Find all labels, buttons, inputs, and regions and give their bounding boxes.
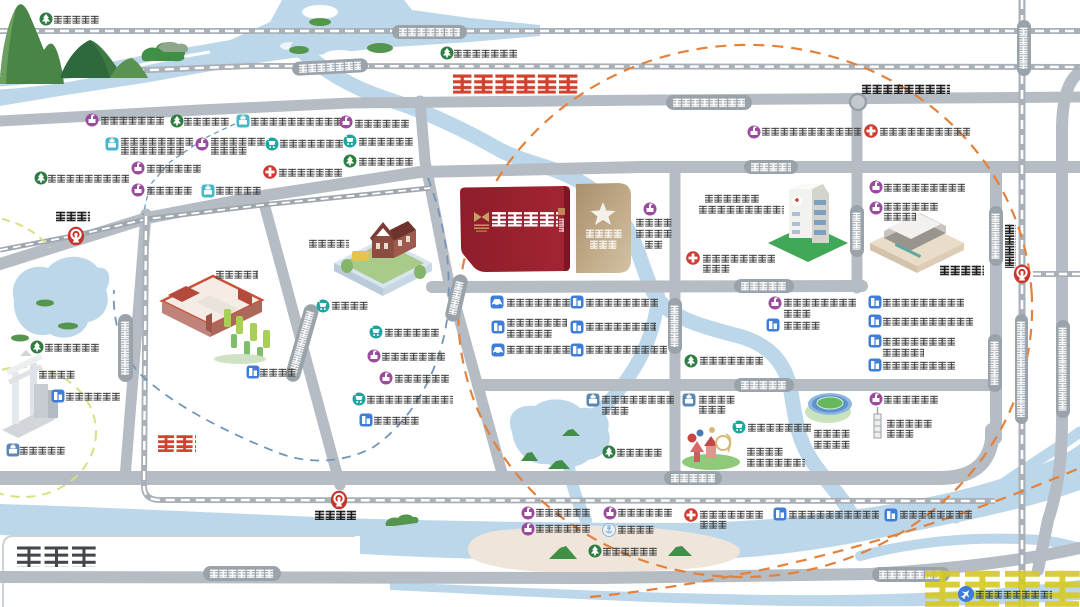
svg-text:(在建): (在建)	[602, 405, 626, 416]
svg-text:观砚大道: 观砚大道	[296, 351, 332, 362]
svg-text:科学产业园: 科学产业园	[507, 328, 552, 339]
svg-text:主题乐园(在建): 主题乐园(在建)	[747, 457, 807, 468]
svg-text:砚阳湖公园: 砚阳湖公园	[617, 448, 662, 458]
svg-text:(优世联合): (优世联合)	[883, 347, 925, 358]
svg-text:肇庆智慧城市中心: 肇庆智慧城市中心	[883, 336, 955, 347]
svg-text:爱满地汽车广场: 爱满地汽车广场	[507, 344, 570, 355]
svg-text:三茂铁路: 三茂铁路	[392, 27, 428, 38]
svg-text:荣发购物广场: 荣发购物广场	[359, 136, 413, 147]
svg-text:广昆高速: 广昆高速	[881, 570, 917, 581]
svg-text:星湖国际广场: 星湖国际广场	[66, 391, 120, 402]
svg-text:肇庆香港城(在建): 肇庆香港城(在建)	[900, 509, 969, 520]
svg-text:华梦汽车产业园: 华梦汽车产业园	[507, 297, 570, 308]
svg-text:体育中心: 体育中心	[814, 439, 850, 450]
svg-text:七星岩风景区: 七星岩风景区	[45, 342, 99, 353]
svg-text:肇庆医学: 肇庆医学	[636, 217, 672, 228]
svg-text:鼎湖市场: 鼎湖市场	[332, 300, 368, 311]
svg-text:平谦国际(肇庆): 平谦国际(肇庆)	[507, 318, 567, 329]
svg-text:两馆一宫: 两馆一宫	[699, 394, 735, 405]
svg-text:好家源购物商场: 好家源购物商场	[280, 138, 343, 149]
svg-text:广昆高速: 广昆高速	[212, 569, 248, 580]
svg-text:(在建): (在建)	[784, 308, 808, 319]
svg-text:鼎湖逸夫小学: 鼎湖逸夫小学	[147, 163, 201, 174]
svg-text:长利湖沙滩公园: 长利湖沙滩公园	[700, 355, 763, 366]
svg-text:吉庆大道: 吉庆大道	[729, 278, 765, 289]
svg-text:管委会: 管委会	[590, 239, 617, 250]
svg-text:鼎湖大道: 鼎湖大道	[668, 470, 704, 481]
svg-text:珠三角新干线机场: 珠三角新干线机场	[976, 589, 1048, 600]
svg-text:龙泰靓房: 龙泰靓房	[924, 591, 960, 602]
svg-text:桂城中心小学: 桂城中心小学	[395, 373, 449, 384]
svg-text:鼎湖山景区: 鼎湖山景区	[54, 14, 99, 24]
svg-text:香港理工大学: 香港理工大学	[884, 201, 938, 212]
svg-text:香港公开大学(在建): 香港公开大学(在建)	[884, 182, 962, 193]
svg-text:粤港澳生态科技产业园: 粤港澳生态科技产业园	[789, 509, 879, 520]
svg-text:九龙湖旅游景区: 九龙湖旅游景区	[454, 47, 517, 58]
svg-text:广利初级中学: 广利初级中学	[618, 507, 672, 518]
svg-text:桂城中心市场: 桂城中心市场	[385, 327, 439, 338]
svg-text:(在建): (在建)	[887, 428, 911, 439]
svg-text:岭南分院: 岭南分院	[211, 145, 247, 156]
svg-text:广利中心小学: 广利中心小学	[536, 523, 590, 534]
svg-text:广东健康医学院(在建): 广东健康医学院(在建)	[880, 126, 967, 137]
svg-text:环球易购b2b总部: 环球易购b2b总部	[586, 321, 655, 332]
svg-text:肇庆新区中心小学: 肇庆新区中心小学	[784, 297, 856, 308]
svg-text:康乐花园: 康乐花园	[784, 320, 820, 331]
svg-text:时代年华: 时代年华	[492, 217, 528, 228]
svg-text:桂城中心幼儿园: 桂城中心幼儿园	[382, 351, 445, 362]
svg-text:岭南水街(在建): 岭南水街(在建)	[748, 422, 808, 433]
svg-text:东进大道: 东进大道	[746, 162, 782, 173]
svg-text:肇庆东站: 肇庆东站	[940, 266, 976, 277]
svg-text:肇庆新区商务中心: 肇庆新区商务中心	[586, 297, 658, 308]
svg-text:砚阳大道: 砚阳大道	[667, 341, 703, 352]
svg-text:高等专科: 高等专科	[636, 228, 672, 239]
svg-text:渔民新村: 渔民新村	[260, 367, 296, 378]
svg-text:肇庆市儿童公园(在建): 肇庆市儿童公园(在建)	[48, 173, 135, 184]
svg-text:凤凰大道: 凤凰大道	[450, 306, 486, 317]
svg-text:(在建): (在建)	[703, 263, 727, 274]
svg-text:兴肇大道: 兴肇大道	[989, 251, 1025, 262]
svg-text:鼎湖中学: 鼎湖中学	[308, 236, 344, 247]
svg-text:中山大学附属: 中山大学附属	[705, 193, 759, 204]
svg-text:鼎湖: 鼎湖	[158, 441, 176, 451]
svg-text:桂城初级中学: 桂城初级中学	[358, 118, 412, 129]
svg-text:鼎湖区实验中学: 鼎湖区实验中学	[101, 115, 164, 126]
svg-text:第三医院(三甲)(在建): 第三医院(三甲)(在建)	[699, 204, 783, 215]
svg-text:(规划中): (规划中)	[884, 211, 917, 222]
svg-text:肇庆市政府: 肇庆市政府	[20, 445, 65, 456]
svg-text:肇庆市农业科学研究所: 肇庆市农业科学研究所	[251, 116, 341, 127]
svg-text:万达广场: 万达广场	[222, 271, 258, 282]
svg-text:鼎湖山牌坊: 鼎湖山牌坊	[184, 115, 229, 126]
svg-text:(在建): (在建)	[699, 404, 723, 415]
svg-text:千亿肇庆新区: 千亿肇庆新区	[453, 83, 507, 94]
svg-text:综合行政执法局: 综合行政执法局	[121, 145, 184, 156]
svg-text:广州大学松田学院(在建): 广州大学松田学院(在建)	[762, 126, 858, 137]
svg-text:肇庆妇幼保健院: 肇庆妇幼保健院	[700, 509, 763, 520]
svg-text:广佛肇城际轨道: 广佛肇城际轨道	[1015, 381, 1078, 392]
svg-text:北大医疗康复医院: 北大医疗康复医院	[703, 253, 775, 264]
svg-text:中国民商总部(在建): 中国民商总部(在建)	[883, 297, 961, 308]
svg-text:贵广铁路: 贵广铁路	[1017, 61, 1053, 72]
svg-text:肇庆市规划展览馆: 肇庆市规划展览馆	[602, 394, 674, 405]
svg-text:肇庆新区: 肇庆新区	[814, 428, 850, 439]
svg-text:维也纳酒店: 维也纳酒店	[374, 415, 419, 426]
svg-text:永利大道: 永利大道	[736, 377, 772, 388]
svg-text:西江明珠塔: 西江明珠塔	[887, 418, 932, 429]
svg-text:启迪环保科技城(在建): 启迪环保科技城(在建)	[883, 316, 970, 327]
svg-text:广佛肇高速: 广佛肇高速	[670, 98, 715, 109]
svg-text:广利渡口: 广利渡口	[618, 524, 654, 535]
svg-text:京东云数据运营中心: 京东云数据运营中心	[586, 344, 667, 355]
svg-text:区位图: 区位图	[17, 557, 44, 568]
svg-text:肇庆宣卿中学: 肇庆宣卿中学	[884, 394, 938, 405]
svg-text:砚州岛风景区: 砚州岛风景区	[603, 546, 657, 557]
svg-text:长利大道: 长利大道	[851, 246, 887, 257]
svg-text:广利高级中学: 广利高级中学	[536, 507, 590, 518]
svg-text:端州站: 端州站	[56, 212, 83, 223]
svg-text:(在建): (在建)	[700, 519, 724, 530]
svg-text:星湖大道: 星湖大道	[118, 361, 154, 372]
svg-text:肇庆新区: 肇庆新区	[586, 228, 622, 239]
svg-text:牌坊广场: 牌坊广场	[39, 369, 75, 380]
svg-text:鼎湖区人民医院: 鼎湖区人民医院	[279, 167, 342, 178]
svg-text:学校: 学校	[645, 239, 663, 250]
svg-text:南广铁路: 南广铁路	[292, 63, 328, 74]
svg-text:鼎湖图书馆: 鼎湖图书馆	[147, 185, 192, 196]
svg-text:丽湖新天地(金逸影院): 丽湖新天地(金逸影院)	[367, 394, 454, 405]
svg-text:鼎湖体育公园: 鼎湖体育公园	[359, 156, 413, 167]
svg-text:广州绕城高速: 广州绕城高速	[1056, 391, 1080, 402]
svg-text:卡乐星球: 卡乐星球	[747, 446, 783, 457]
svg-text:肇庆国际科创中心: 肇庆国际科创中心	[883, 360, 955, 371]
svg-text:肇庆新区高速入口: 肇庆新区高速入口	[862, 84, 934, 95]
svg-text:鼎湖区政府: 鼎湖区政府	[216, 185, 261, 196]
svg-text:鼎湖山站: 鼎湖山站	[318, 510, 354, 521]
